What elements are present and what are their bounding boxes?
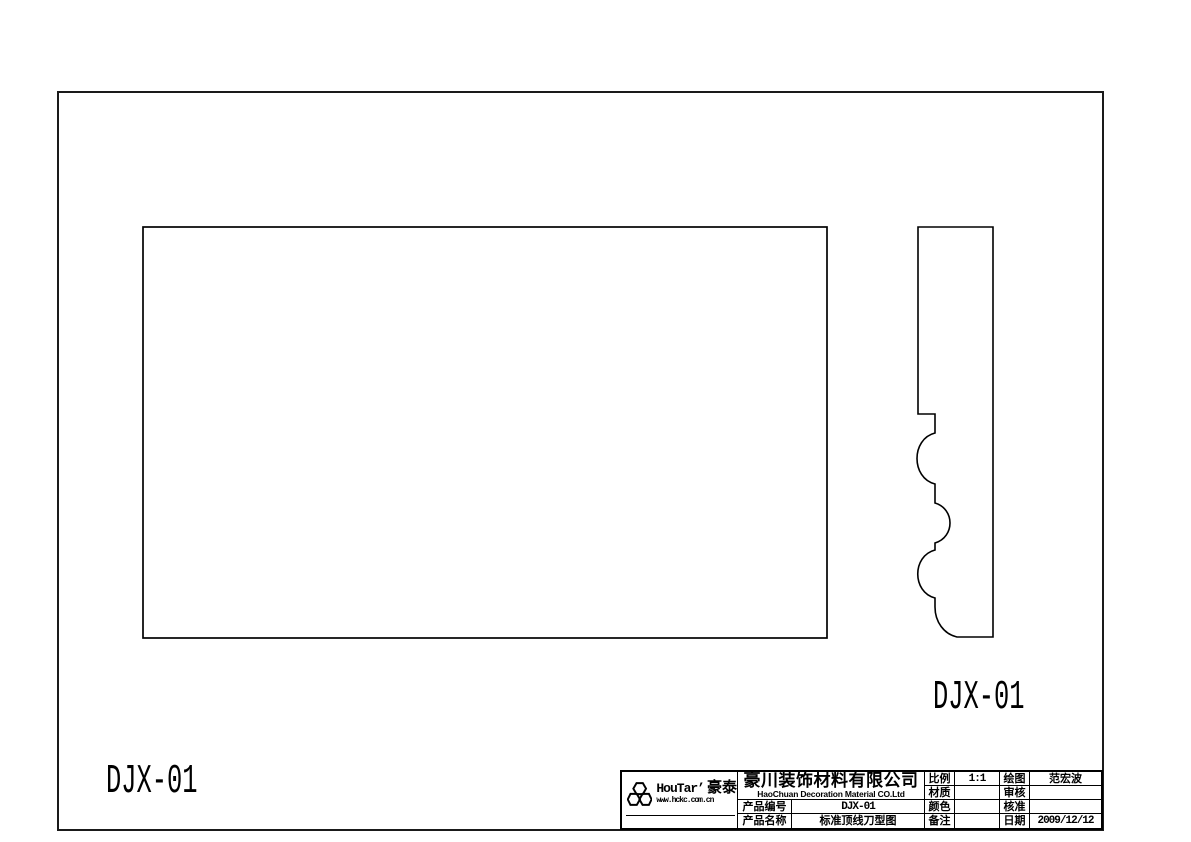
checked-value [1030, 786, 1101, 800]
front-view-rect [143, 227, 827, 638]
approved-value [1030, 800, 1101, 814]
company-cell: 豪川装饰材料有限公司 HaoChuan Decoration Material … [738, 772, 925, 800]
company-name-en: HaoChuan Decoration Material CO.Ltd [757, 790, 904, 799]
product-no-value: DJX-01 [792, 800, 925, 814]
scale-value: 1:1 [955, 772, 1000, 786]
profile-view-label: DJX-01 [933, 678, 1025, 719]
title-block: HouTar’ 豪泰 www.hckc.com.cn 豪川装饰材料有限公司 Ha… [620, 770, 1103, 830]
approved-label: 核准 [1000, 800, 1030, 814]
drawn-by-label: 绘图 [1000, 772, 1030, 786]
color-label: 颜色 [925, 800, 955, 814]
honeycomb-logo-icon [627, 781, 652, 808]
remarks-value [955, 814, 1000, 828]
product-no-label: 产品编号 [738, 800, 792, 814]
brand-name-cn: 豪泰 [707, 782, 737, 794]
material-value [955, 786, 1000, 800]
product-name-value: 标准顶线刀型图 [792, 814, 925, 828]
front-view-label: DJX-01 [106, 762, 198, 803]
company-name-cn: 豪川装饰材料有限公司 [744, 772, 919, 789]
product-name-label: 产品名称 [738, 814, 792, 828]
scale-label: 比例 [925, 772, 955, 786]
date-label: 日期 [1000, 814, 1030, 828]
remarks-label: 备注 [925, 814, 955, 828]
logo-underline [626, 815, 735, 816]
drawn-by-value: 范宏波 [1030, 772, 1101, 786]
profile-section-path [917, 227, 993, 637]
material-label: 材质 [925, 786, 955, 800]
brand-website: www.hckc.com.cn [656, 795, 737, 807]
color-value [955, 800, 1000, 814]
logo-cell: HouTar’ 豪泰 www.hckc.com.cn [622, 772, 738, 828]
date-value: 2009/12/12 [1030, 814, 1101, 828]
checked-label: 审核 [1000, 786, 1030, 800]
brand-name-en: HouTar’ [656, 783, 704, 795]
